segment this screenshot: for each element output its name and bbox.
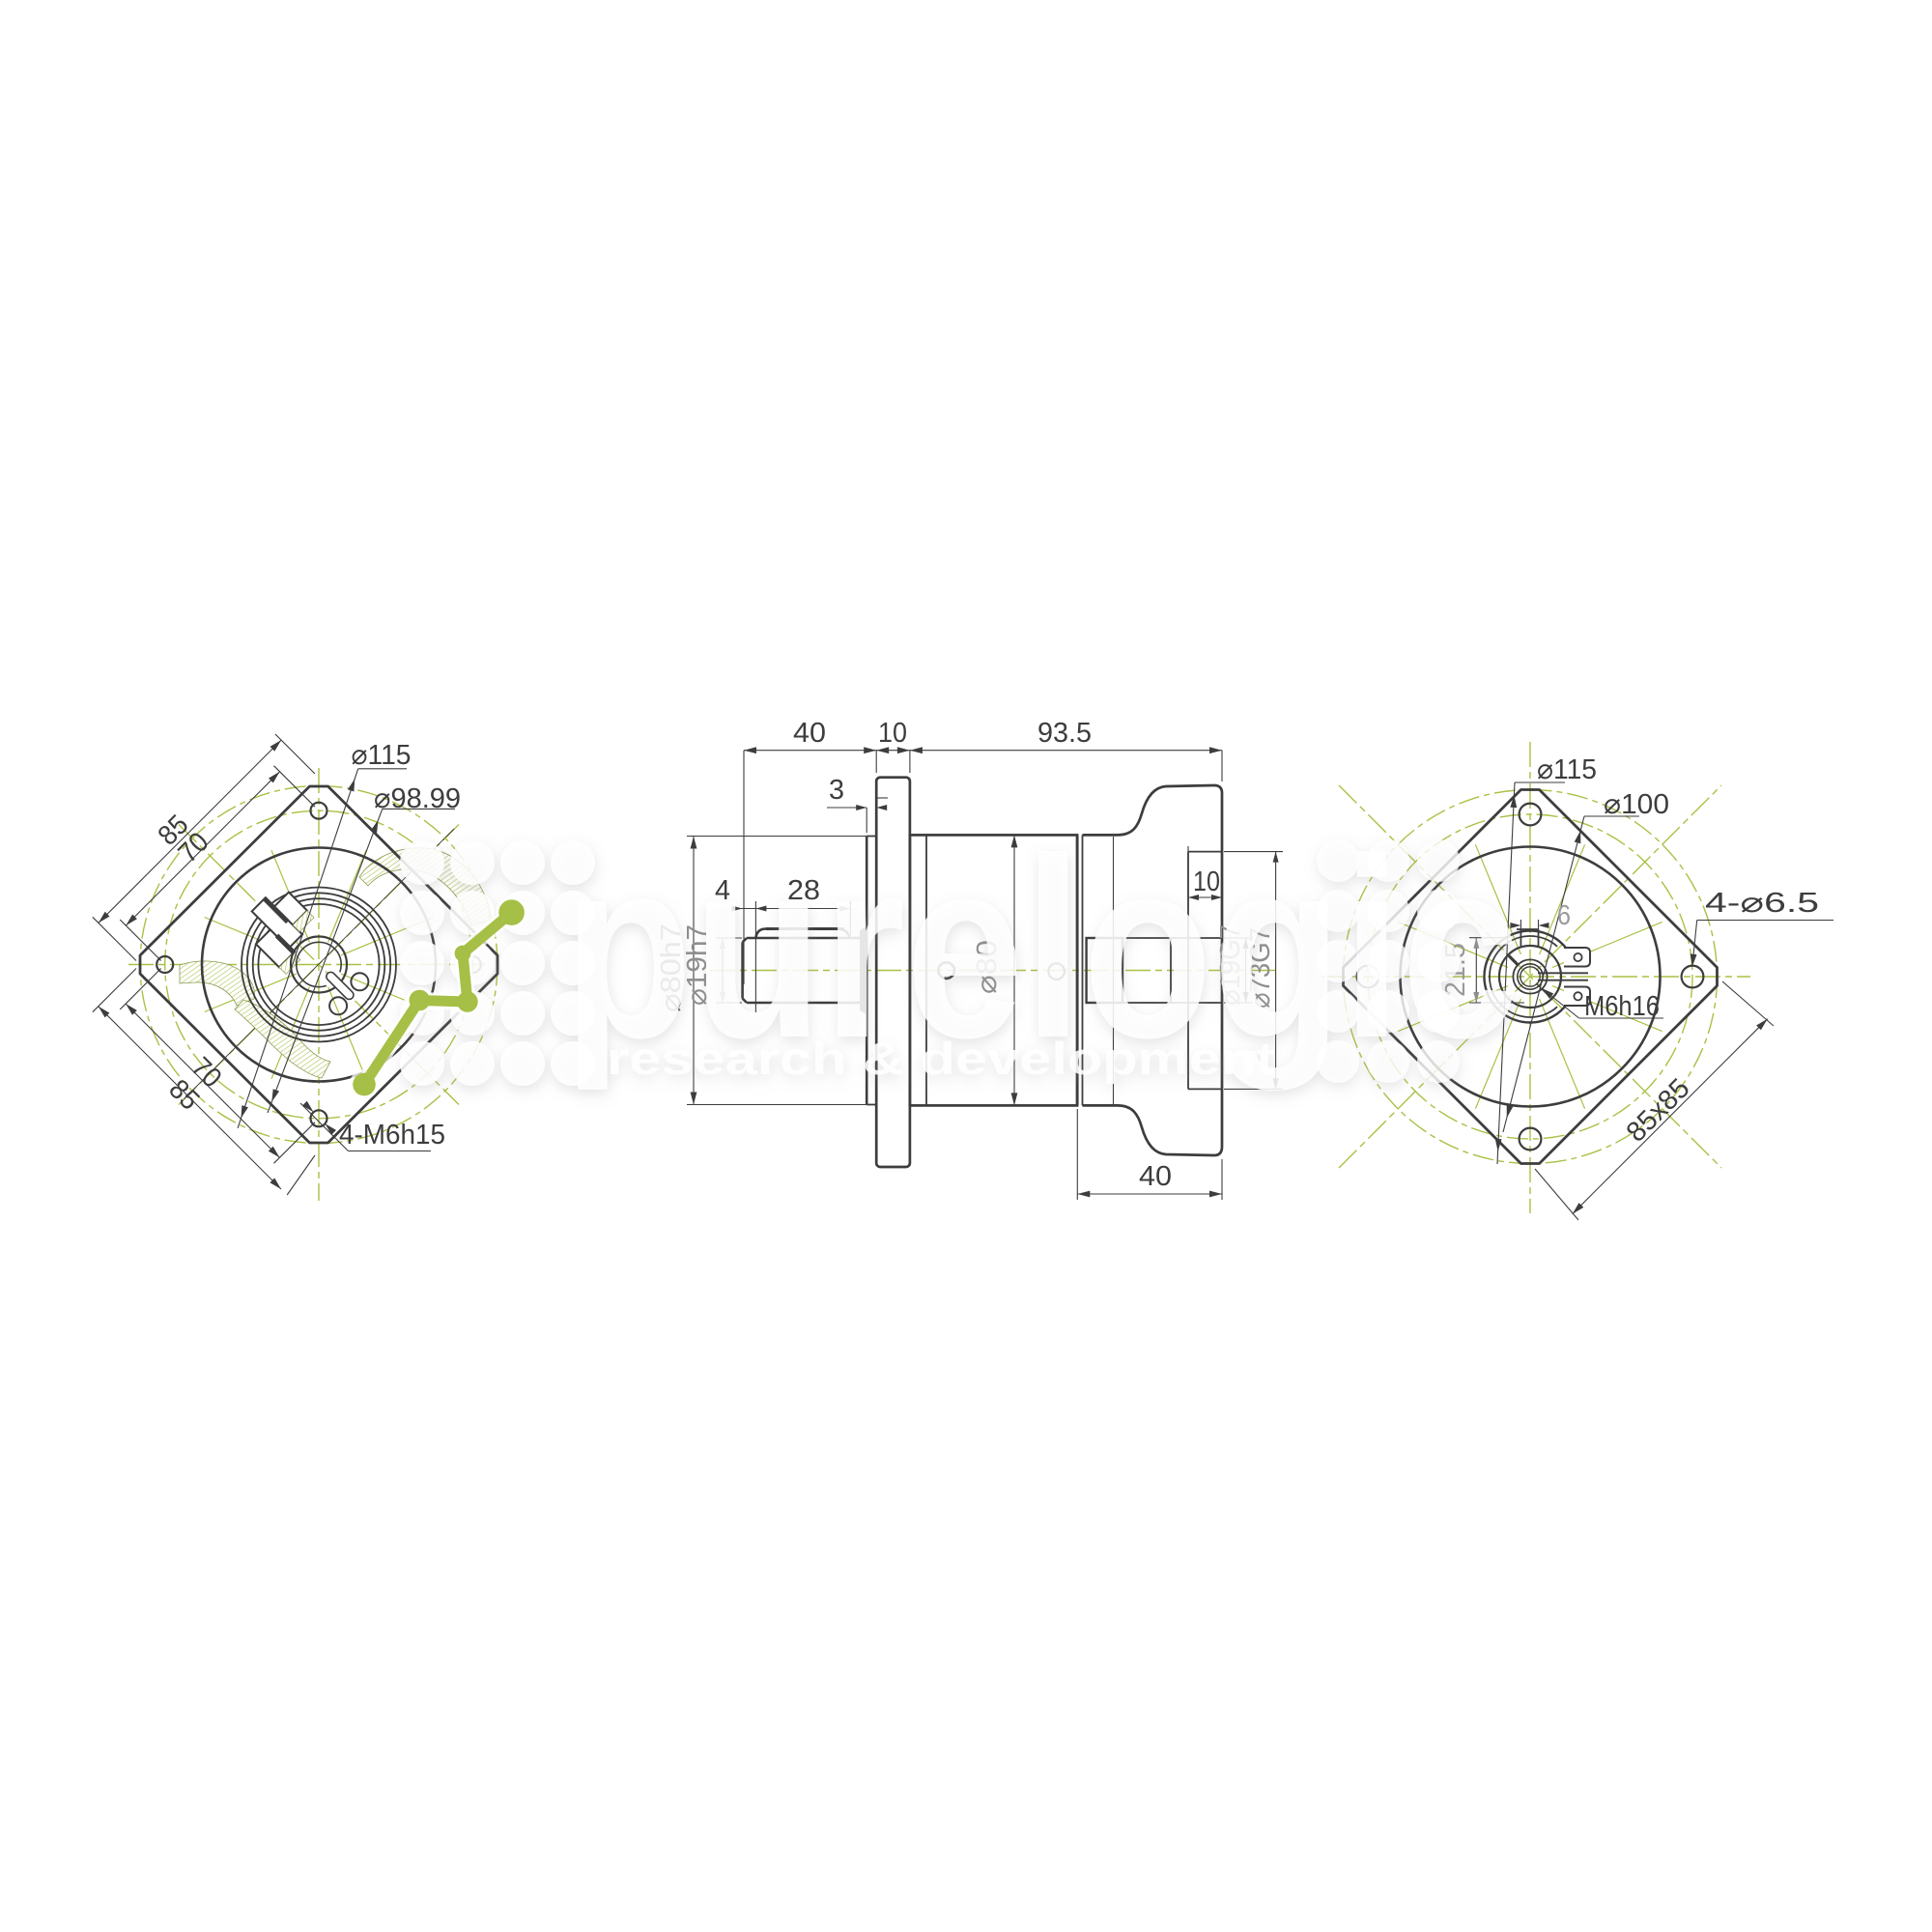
svg-text:40: 40	[793, 718, 826, 749]
svg-text:⌀115: ⌀115	[352, 740, 412, 771]
svg-text:research & development: research & development	[607, 1033, 1275, 1084]
svg-text:4-M6h15: 4-M6h15	[339, 1120, 445, 1151]
svg-text:M6h16: M6h16	[1584, 991, 1660, 1022]
svg-text:3: 3	[829, 775, 844, 806]
svg-text:⌀100: ⌀100	[1604, 789, 1669, 820]
svg-text:4-⌀6.5: 4-⌀6.5	[1705, 888, 1819, 919]
svg-text:93.5: 93.5	[1037, 718, 1092, 749]
svg-text:6: 6	[1557, 900, 1571, 931]
svg-text:⌀115: ⌀115	[1537, 754, 1597, 785]
svg-text:40: 40	[1139, 1161, 1172, 1192]
svg-text:⌀98.99: ⌀98.99	[374, 783, 461, 814]
svg-text:10: 10	[878, 718, 907, 749]
